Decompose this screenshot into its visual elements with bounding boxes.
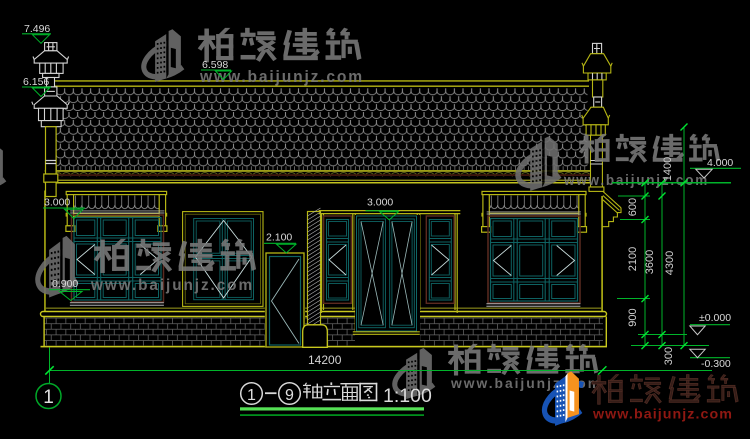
svg-text:7.496: 7.496 xyxy=(24,23,50,35)
svg-text:2.100: 2.100 xyxy=(266,232,292,244)
svg-text:14200: 14200 xyxy=(308,353,342,367)
svg-text:6.156: 6.156 xyxy=(23,76,49,88)
svg-text:300: 300 xyxy=(663,347,675,365)
svg-text:3600: 3600 xyxy=(644,250,656,274)
svg-text:3.000: 3.000 xyxy=(367,197,393,209)
svg-text:3.000: 3.000 xyxy=(44,197,70,209)
svg-text:1: 1 xyxy=(247,387,256,404)
svg-text:0.900: 0.900 xyxy=(52,278,78,290)
svg-text:900: 900 xyxy=(627,308,639,326)
svg-text:600: 600 xyxy=(627,198,639,216)
svg-text:-0.300: -0.300 xyxy=(701,358,731,370)
svg-text:6.598: 6.598 xyxy=(202,59,228,71)
svg-text:±0.000: ±0.000 xyxy=(699,312,731,324)
svg-text:www.baijunjz.com: www.baijunjz.com xyxy=(90,277,254,294)
svg-text:4300: 4300 xyxy=(664,251,676,275)
svg-text:1400: 1400 xyxy=(662,157,674,181)
svg-text:1:100: 1:100 xyxy=(383,385,432,407)
svg-text:www.baijunjz.com: www.baijunjz.com xyxy=(592,407,733,422)
svg-text:1: 1 xyxy=(43,387,54,408)
svg-text:2100: 2100 xyxy=(627,247,639,271)
svg-text:9: 9 xyxy=(285,387,294,404)
svg-text:4.000: 4.000 xyxy=(707,157,733,169)
